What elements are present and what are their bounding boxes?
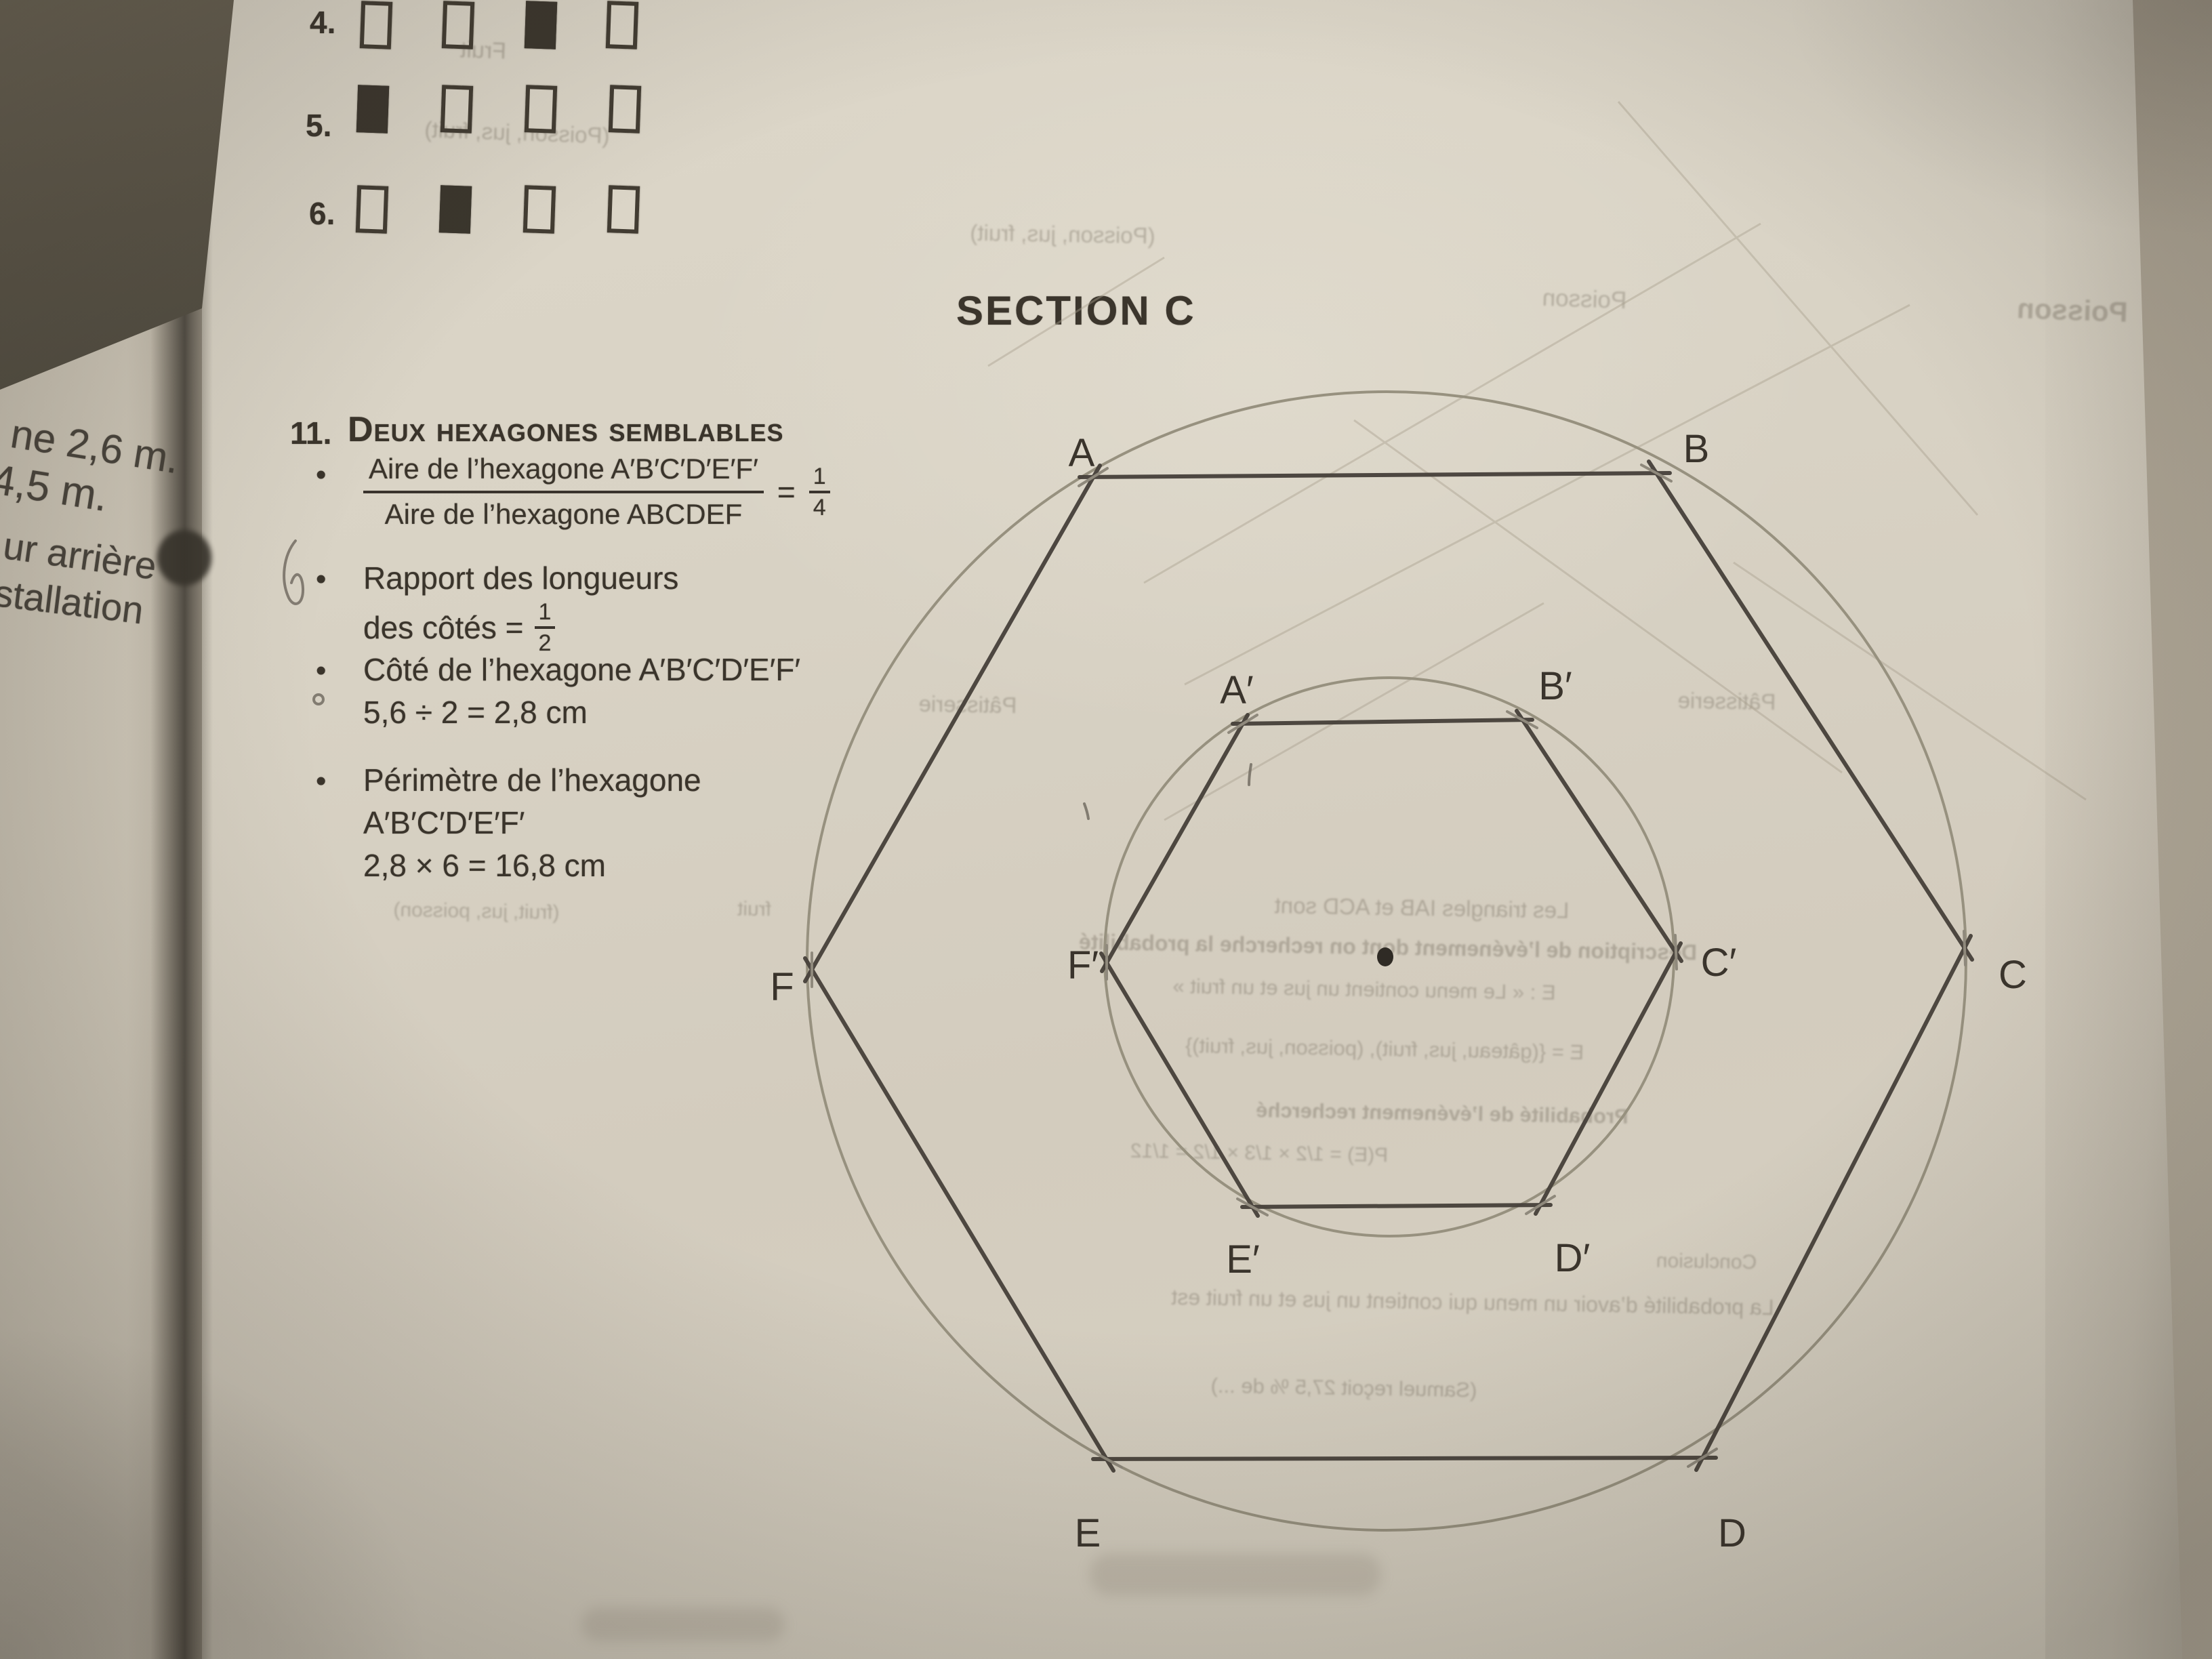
outer-hexagon (805, 462, 1972, 1471)
vertex-label-C-prime: C′ (1701, 941, 1737, 985)
pencil-margin-marks (270, 522, 365, 718)
adjacent-page-edge: ne 2,6 m. 4,5 m. ur arrière stallation (0, 291, 205, 1659)
pencil-marks-figure (1084, 764, 1251, 819)
pencil-squiggle (284, 541, 303, 604)
photo-of-textbook-page: ne 2,6 m. 4,5 m. ur arrière stallation F… (0, 0, 2212, 1659)
vertex-label-E: E (1075, 1511, 1101, 1555)
vertex-label-D-prime: D′ (1555, 1236, 1591, 1280)
vertex-label-D: D (1718, 1511, 1746, 1555)
vertex-label-E-prime: E′ (1226, 1237, 1260, 1282)
vertex-label-B-prime: B′ (1538, 664, 1572, 708)
vertex-label-B: B (1683, 427, 1710, 471)
vertex-label-F-prime: F′ (1067, 943, 1099, 987)
hexagons-figure: A B C D E F A′ B′ C′ D′ E′ F′ (202, 0, 2212, 1659)
textbook-page: Fruit(Poisson, jus, fruit)(Poisson, jus,… (202, 0, 2212, 1659)
pencil-small-circle (314, 695, 323, 704)
center-point-dot (1377, 947, 1393, 966)
vertex-label-C: C (1999, 953, 2027, 997)
vertex-label-F: F (770, 965, 794, 1009)
vertex-label-A-prime: A′ (1220, 668, 1254, 712)
bleed-through-lines (988, 102, 2086, 820)
vertex-tick-marks (812, 465, 1965, 1467)
inner-hexagon (1101, 711, 1681, 1216)
vertex-label-A: A (1069, 431, 1095, 475)
